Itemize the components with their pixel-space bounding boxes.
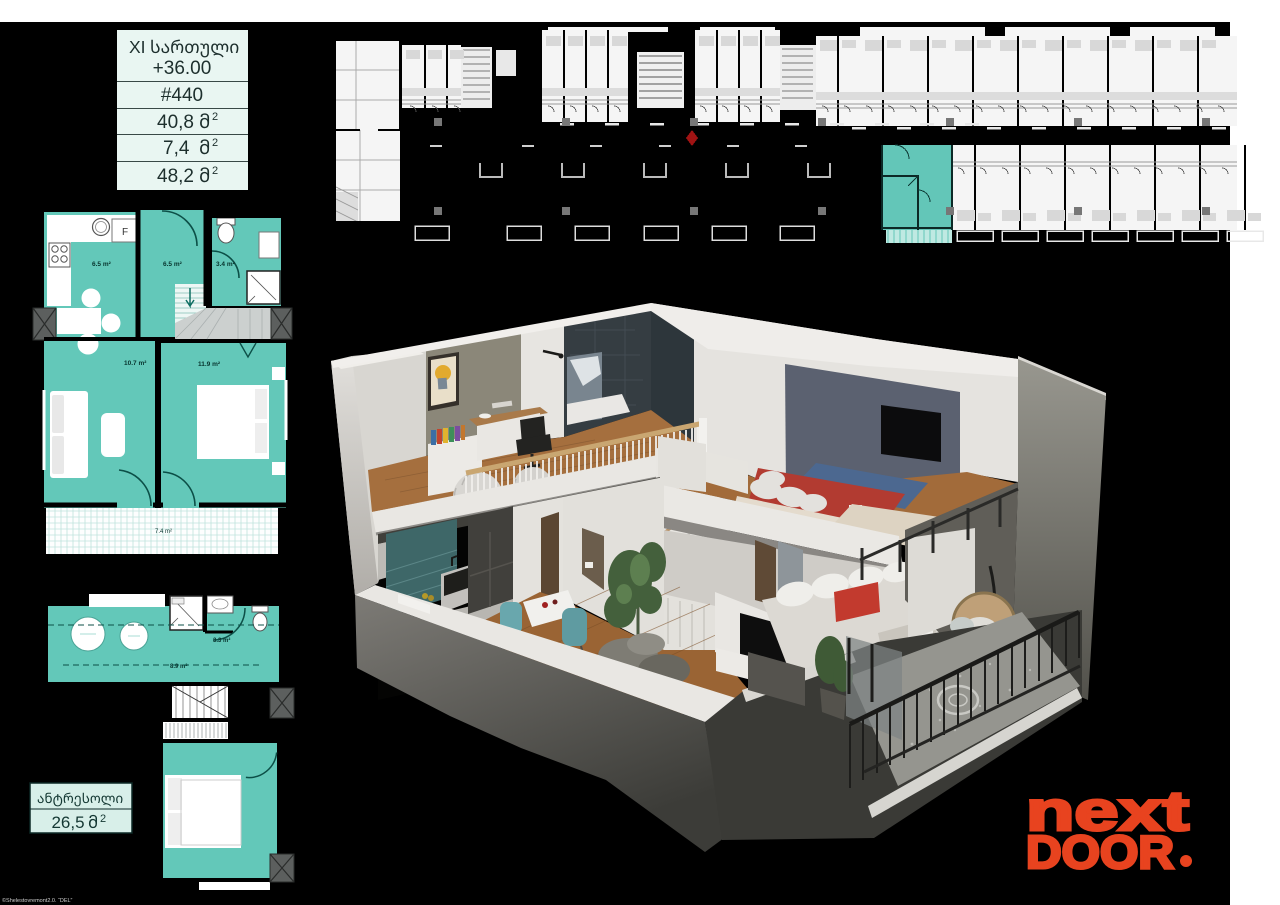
svg-text:DOOR: DOOR bbox=[1026, 826, 1174, 878]
svg-text:+36.00: +36.00 bbox=[153, 58, 212, 79]
svg-text:XI: XI bbox=[129, 37, 146, 57]
svg-text:7,4: 7,4 bbox=[163, 138, 190, 159]
svg-text:3.4 m²: 3.4 m² bbox=[216, 261, 236, 268]
svg-text:2: 2 bbox=[100, 813, 106, 825]
svg-text:2: 2 bbox=[212, 137, 218, 149]
svg-text:6.5 m²: 6.5 m² bbox=[163, 261, 183, 268]
svg-text:2: 2 bbox=[212, 165, 218, 177]
svg-text:10.7 m²: 10.7 m² bbox=[124, 360, 147, 367]
svg-text:40,8: 40,8 bbox=[157, 112, 194, 133]
svg-text:26,5: 26,5 bbox=[51, 813, 84, 832]
svg-text:3.3 m²: 3.3 m² bbox=[213, 637, 230, 644]
svg-text:8.9 m²: 8.9 m² bbox=[170, 663, 187, 670]
svg-text:#440: #440 bbox=[161, 85, 203, 106]
svg-text:48,2: 48,2 bbox=[157, 166, 194, 187]
svg-text:F: F bbox=[122, 227, 128, 238]
svg-text:©Shelestovremont2.0. “DEL”: ©Shelestovremont2.0. “DEL” bbox=[2, 897, 73, 904]
svg-text:6.5 m²: 6.5 m² bbox=[92, 261, 112, 268]
svg-text:2: 2 bbox=[212, 111, 218, 123]
svg-text:7.4 m²: 7.4 m² bbox=[155, 529, 172, 535]
svg-text:11.9 m²: 11.9 m² bbox=[198, 361, 221, 368]
